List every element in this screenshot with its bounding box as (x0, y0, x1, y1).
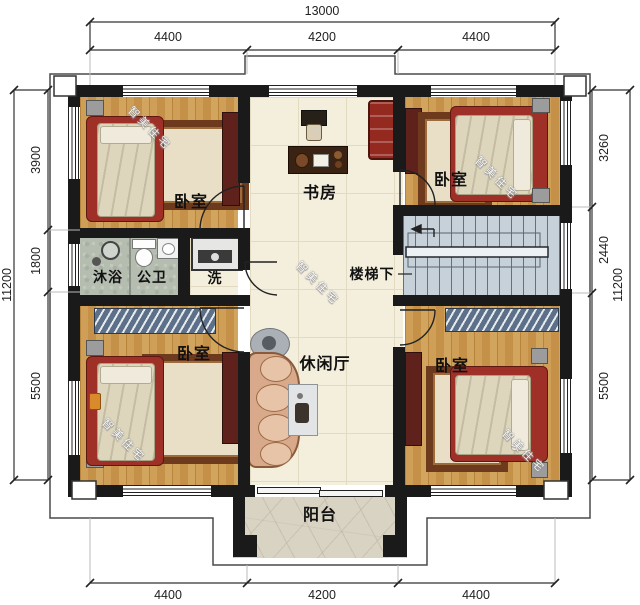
balcony-column-right (383, 535, 407, 557)
wall-bath-top (80, 228, 250, 238)
nightstand (86, 340, 104, 356)
dim-left-seg-2: 1800 (29, 247, 43, 275)
label-bedroom-bottom-left: 卧室 (177, 340, 211, 364)
wardrobe (445, 308, 559, 332)
dim-top-seg-3: 4400 (462, 30, 490, 44)
dim-right-total: 11200 (611, 268, 625, 302)
bed (450, 366, 548, 462)
wall-bath-bottom (80, 295, 250, 306)
label-laundry: 洗 (208, 268, 223, 288)
label-bedroom-top-left: 卧室 (174, 188, 208, 212)
dim-right-seg-1: 3260 (597, 134, 611, 162)
nightstand (532, 98, 550, 113)
window (68, 106, 80, 180)
window (430, 485, 517, 497)
sofa-cushion (260, 442, 292, 466)
shower-head (101, 241, 120, 260)
window (560, 222, 572, 290)
wall-lounge-bedroomBR (393, 347, 405, 486)
window (68, 380, 80, 456)
wall-balcony-left (233, 497, 245, 539)
bath-divider (129, 238, 131, 295)
washing-machine (191, 237, 243, 271)
wall-stairs-top (393, 205, 572, 216)
wall-study-bedroomTR (393, 97, 405, 172)
desk-chair-seat (306, 124, 322, 141)
dim-right-seg-3: 5500 (597, 372, 611, 400)
dim-bottom-seg-2: 4200 (308, 588, 336, 602)
dim-left-total: 11200 (0, 268, 14, 302)
sofa-cushion (260, 356, 292, 382)
label-toilet: 公卫 (137, 267, 167, 287)
wall-laundry-hall (238, 238, 250, 270)
dim-top-total: 13000 (305, 4, 340, 18)
nightstand (531, 348, 548, 364)
wall-bedroomTL-study (238, 97, 250, 183)
label-balcony: 阳台 (303, 501, 337, 525)
desk (288, 146, 348, 174)
tv-cabinet (405, 352, 422, 446)
dim-left-seg-1: 3900 (29, 146, 43, 174)
wardrobe (94, 308, 216, 334)
dim-top-seg-1: 4400 (154, 30, 182, 44)
balcony-column-left (233, 535, 257, 557)
coffee-table (288, 384, 318, 436)
label-lounge: 休闲厅 (299, 350, 350, 374)
window (560, 378, 572, 454)
label-under-stairs: 楼梯下 (350, 264, 395, 284)
label-shower: 沐浴 (93, 267, 123, 287)
wall-bath-laundry (178, 238, 190, 295)
wall-bedroomBL-lounge (238, 352, 250, 486)
dim-bottom-seg-1: 4400 (154, 588, 182, 602)
window (68, 243, 80, 287)
dim-bottom-seg-3: 4400 (462, 588, 490, 602)
sofa-cushion (256, 384, 292, 412)
sink (157, 238, 179, 259)
wall-stairs-bottom (393, 295, 572, 306)
window (122, 85, 210, 97)
label-bedroom-top-right: 卧室 (434, 166, 468, 190)
window (268, 85, 358, 97)
dim-left-seg-3: 5500 (29, 372, 43, 400)
floor-plan: 卧室 书房 卧室 沐浴 公卫 洗 楼梯下 卧室 休闲厅 卧室 阳台 13000 … (0, 0, 640, 605)
wall-balcony-right (395, 497, 407, 539)
label-bedroom-bottom-right: 卧室 (435, 352, 469, 376)
label-study: 书房 (303, 179, 337, 203)
nightstand (86, 100, 104, 116)
shower-valve (92, 257, 101, 266)
wall-stairs-left (393, 216, 403, 255)
dim-right-seg-2: 2440 (597, 236, 611, 264)
window (560, 100, 572, 166)
window (430, 85, 517, 97)
nightstand (532, 188, 550, 203)
dim-top-seg-2: 4200 (308, 30, 336, 44)
staircase-floor (403, 216, 560, 295)
toilet-bowl (135, 248, 153, 267)
sliding-door-balcony (255, 485, 385, 497)
window (122, 485, 212, 497)
